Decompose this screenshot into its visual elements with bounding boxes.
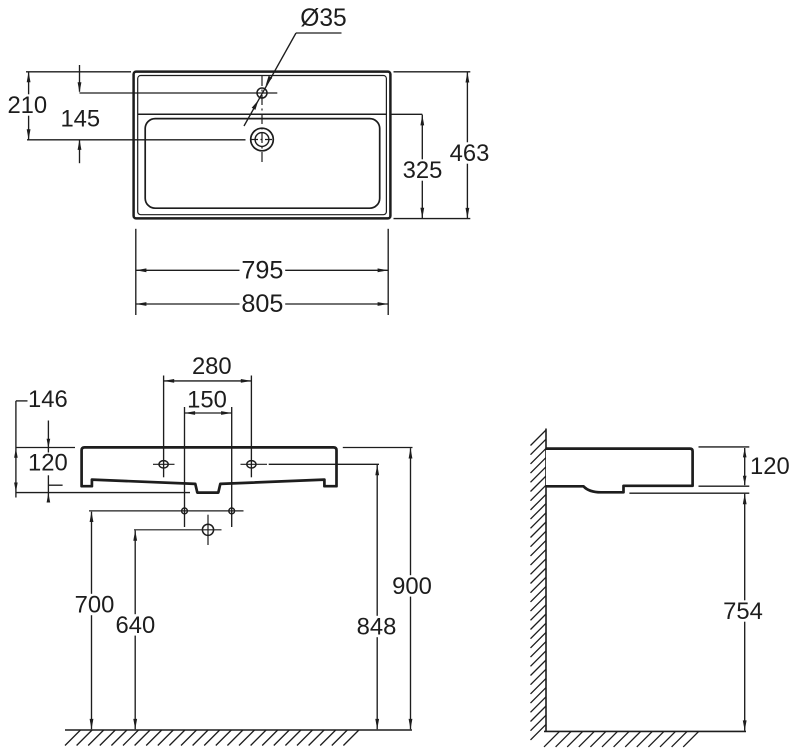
svg-text:640: 640 [116, 612, 156, 639]
svg-text:280: 280 [192, 353, 232, 380]
svg-text:795: 795 [241, 256, 283, 284]
svg-text:700: 700 [75, 592, 115, 619]
svg-text:120: 120 [750, 453, 790, 480]
svg-text:805: 805 [241, 290, 283, 318]
svg-text:120: 120 [28, 449, 68, 476]
svg-text:325: 325 [403, 157, 443, 184]
svg-text:848: 848 [357, 614, 397, 641]
svg-text:150: 150 [187, 386, 227, 413]
svg-text:Ø35: Ø35 [300, 5, 347, 32]
svg-text:900: 900 [392, 573, 432, 600]
svg-text:210: 210 [7, 92, 47, 119]
svg-text:145: 145 [60, 105, 100, 132]
svg-text:754: 754 [723, 598, 763, 625]
svg-text:146: 146 [28, 386, 68, 413]
svg-text:463: 463 [450, 140, 490, 167]
